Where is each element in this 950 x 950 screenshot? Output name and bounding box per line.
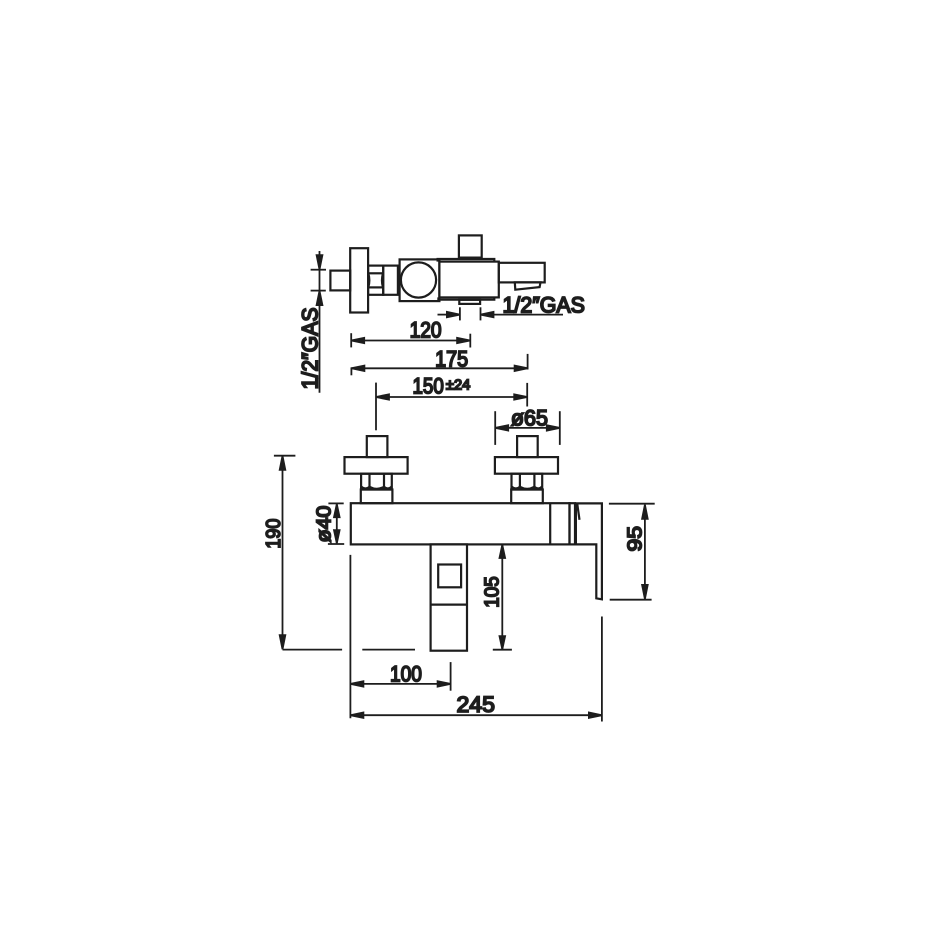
svg-text:100: 100	[390, 661, 422, 686]
svg-text:95: 95	[624, 526, 647, 552]
svg-text:175: 175	[435, 346, 468, 371]
svg-text:ø40: ø40	[313, 506, 336, 543]
svg-text:ø65: ø65	[511, 406, 548, 431]
svg-text:±24: ±24	[446, 377, 470, 394]
svg-text:190: 190	[262, 519, 285, 549]
svg-text:1/2″GAS: 1/2″GAS	[297, 307, 322, 389]
svg-text:1/2″GAS: 1/2″GAS	[503, 292, 585, 317]
svg-text:105: 105	[481, 576, 504, 608]
svg-text:150: 150	[413, 373, 444, 398]
svg-text:245: 245	[457, 692, 495, 717]
svg-text:120: 120	[410, 318, 442, 343]
